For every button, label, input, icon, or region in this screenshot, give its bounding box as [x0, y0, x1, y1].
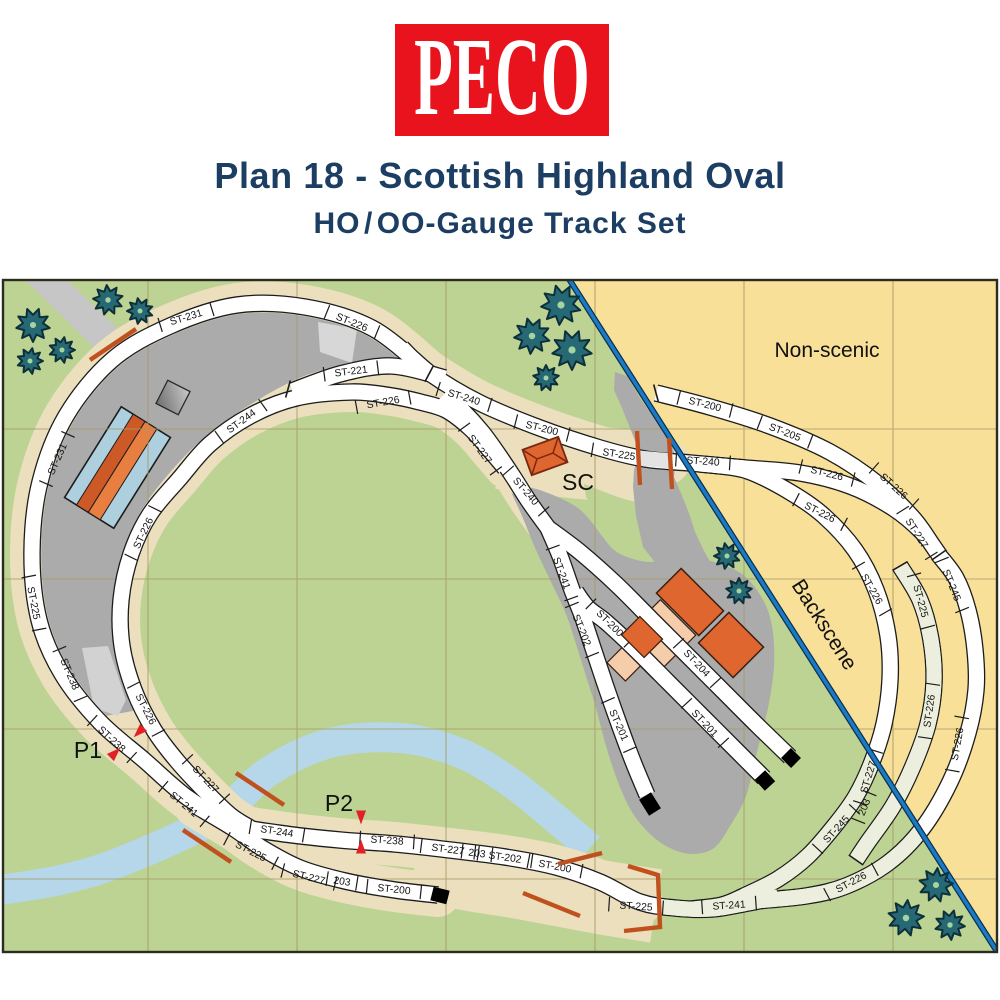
svg-text:203: 203 [468, 848, 487, 861]
svg-text:ST-225: ST-225 [619, 900, 653, 913]
svg-text:ST-241: ST-241 [712, 899, 746, 912]
svg-text:P1: P1 [74, 737, 102, 763]
svg-text:Non-scenic: Non-scenic [774, 339, 879, 362]
svg-text:P2: P2 [325, 790, 353, 816]
svg-text:ST-238: ST-238 [370, 834, 404, 847]
svg-text:SC: SC [562, 469, 594, 495]
